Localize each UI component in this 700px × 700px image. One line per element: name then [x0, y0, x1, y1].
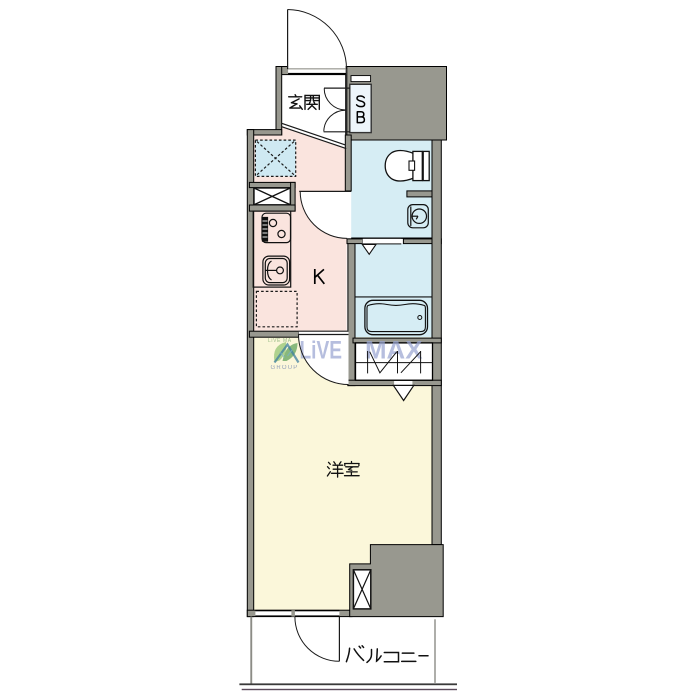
svg-text:GROUP: GROUP: [271, 365, 299, 371]
svg-text:LiVE MA: LiVE MA: [268, 338, 292, 344]
